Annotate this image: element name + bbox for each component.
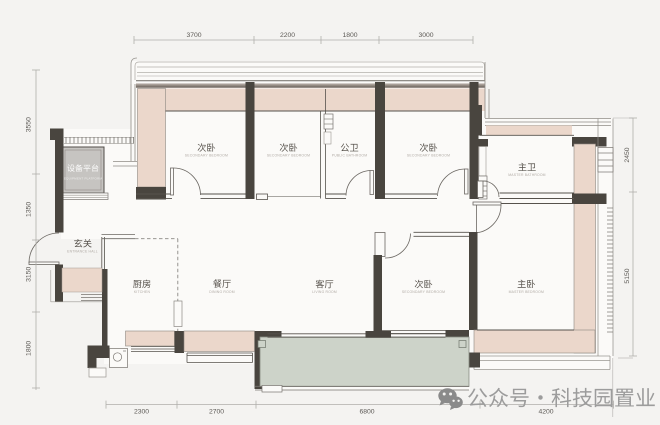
svg-text:5150: 5150 bbox=[624, 268, 631, 283]
svg-text:MASTER BATHROOM: MASTER BATHROOM bbox=[508, 173, 545, 177]
svg-text:3700: 3700 bbox=[186, 32, 201, 39]
svg-text:1800: 1800 bbox=[342, 32, 357, 39]
svg-text:2700: 2700 bbox=[209, 408, 224, 415]
svg-text:1800: 1800 bbox=[26, 341, 33, 356]
svg-text:SECONDARY BEDROOM: SECONDARY BEDROOM bbox=[407, 154, 450, 158]
svg-text:4200: 4200 bbox=[538, 408, 553, 415]
svg-text:3550: 3550 bbox=[26, 117, 33, 132]
svg-text:ENTRANCE HALL: ENTRANCE HALL bbox=[67, 250, 98, 254]
svg-text:LIVING ROOM: LIVING ROOM bbox=[312, 290, 337, 294]
svg-text:EQUIPMENT PLATFORM: EQUIPMENT PLATFORM bbox=[64, 177, 103, 181]
svg-text:2450: 2450 bbox=[624, 147, 631, 162]
svg-text:1350: 1350 bbox=[26, 202, 33, 217]
svg-text:2200: 2200 bbox=[280, 32, 295, 39]
svg-text:DINING ROOM: DINING ROOM bbox=[209, 290, 235, 294]
svg-text:SECONDARY BEDROOM: SECONDARY BEDROOM bbox=[185, 154, 228, 158]
svg-text:2300: 2300 bbox=[134, 408, 149, 415]
svg-text:6800: 6800 bbox=[359, 408, 374, 415]
svg-text:MASTER BEDROOM: MASTER BEDROOM bbox=[509, 290, 544, 294]
svg-text:PUBLIC BATHROOM: PUBLIC BATHROOM bbox=[332, 154, 368, 158]
svg-text:3150: 3150 bbox=[26, 267, 33, 282]
svg-text:3000: 3000 bbox=[418, 32, 433, 39]
svg-text:SECONDARY BEDROOM: SECONDARY BEDROOM bbox=[402, 290, 445, 294]
svg-text:KITCHEN: KITCHEN bbox=[134, 290, 151, 294]
svg-text:SECONDARY BEDROOM: SECONDARY BEDROOM bbox=[267, 154, 310, 158]
